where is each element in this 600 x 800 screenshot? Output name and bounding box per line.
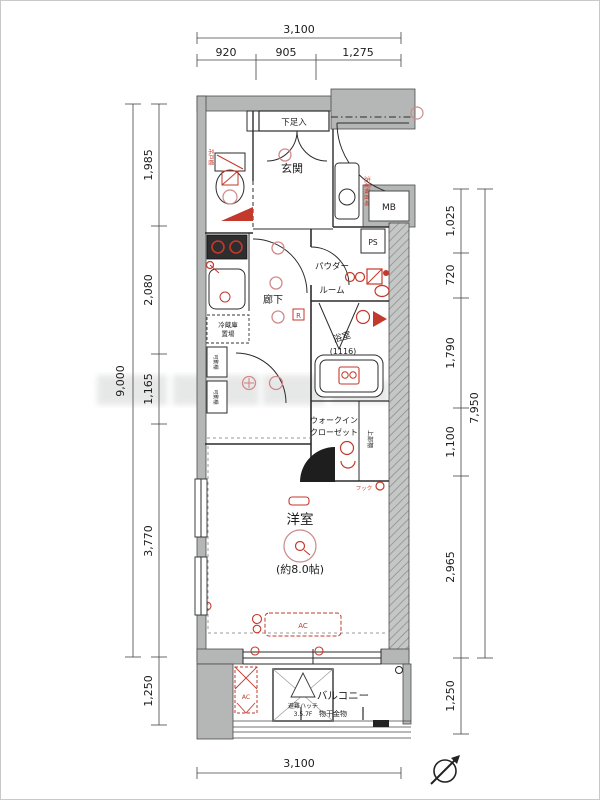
ceiling-light-icon [284, 530, 316, 562]
dim-top-seg-2: 905 [276, 46, 297, 59]
balcony-window [243, 647, 381, 664]
dim-right-seg-5: 2,965 [444, 551, 457, 583]
wall-bottom-right [381, 649, 409, 664]
relay-mark-label: R [296, 312, 301, 320]
shower-marker [373, 311, 387, 327]
washing-machine [335, 163, 359, 219]
dim-right-seg-6: 1,250 [444, 680, 457, 712]
entrance-label: 玄関 [281, 161, 303, 175]
wall-right-hatched [389, 223, 409, 661]
dimension-right: 1,025 720 1,790 1,100 2,965 1,250 7,950 [444, 189, 493, 734]
hallway-label: 廊下 [263, 293, 283, 306]
dim-bottom-total: 3,100 [283, 757, 315, 770]
dim-top-seg-3: 1,275 [342, 46, 374, 59]
upper-shelf-label: 上部棚 [366, 430, 374, 448]
shoe-door-arc-left [267, 131, 297, 161]
western-room-size-label: (約8.0帖) [276, 562, 324, 576]
fridge-space [207, 315, 249, 343]
shoe-door-arc-right [297, 131, 327, 161]
dimension-left: 9,000 1,985 2,080 1,165 3,770 1,250 [114, 104, 167, 725]
kitchen-sink [209, 269, 245, 309]
dim-right-seg-4: 1,100 [444, 426, 457, 458]
bathtub [315, 355, 383, 397]
wall-balcony-left [197, 664, 233, 739]
movable-shelf-label-1: 可動棚 [212, 354, 219, 369]
closet-label-2: クローゼット [310, 427, 358, 437]
stove [207, 235, 247, 259]
balcony-label: バルコニー [317, 690, 369, 702]
dim-right-seg-2: 720 [444, 265, 457, 286]
walls [197, 89, 415, 739]
fridge-label-2: 置場 [222, 329, 236, 338]
dim-top-total: 3,100 [283, 23, 315, 36]
dim-left-seg-1: 1,985 [142, 149, 155, 181]
hook-label: フック [356, 485, 373, 492]
toilet-room: 吊戸棚 [205, 111, 253, 233]
meter-box-label: MB [382, 203, 396, 213]
dim-left-seg-5: 1,250 [142, 675, 155, 707]
western-room-label: 洋室 [287, 511, 314, 528]
wall-bottom-left [197, 649, 243, 664]
hall-door-arc [253, 239, 307, 293]
dim-left-total: 9,000 [114, 365, 127, 397]
evacuation-hatch-label-1: 避難ハッチ [288, 702, 318, 710]
balcony: AC 避難ハッチ 3.5.7F バルコニー 物干金物 [233, 667, 411, 739]
powder-room-label-1: パウダー [315, 261, 349, 272]
movable-shelf-label-2: 可動棚 [212, 389, 219, 404]
balcony-drain-box [373, 720, 389, 727]
walk-in-closet: ウォークイン クローゼット 上部棚 フック [300, 401, 389, 492]
drying-fixture-label: 物干金物 [319, 709, 347, 718]
ac-outdoor-space [235, 667, 257, 713]
dim-left-seg-2: 2,080 [142, 274, 155, 306]
dimension-bottom: 3,100 [197, 757, 401, 779]
toilet-red-marker [221, 207, 253, 221]
dim-top-seg-1: 920 [216, 46, 237, 59]
ac-label: AC [298, 622, 308, 630]
detector-icon [289, 497, 309, 505]
toilet-bowl [216, 170, 244, 204]
shoe-cabinet-label: 下足入 [281, 118, 307, 128]
floor-plan-drawing: 3,100 920 905 1,275 9,000 1,985 2,080 1,… [1, 1, 599, 799]
dim-right-total: 7,950 [468, 392, 481, 424]
north-arrow-icon [431, 755, 460, 784]
floor-plan-canvas: 3,100 920 905 1,275 9,000 1,985 2,080 1,… [0, 0, 600, 800]
dim-right-seg-3: 1,790 [444, 337, 457, 369]
evacuation-hatch-label-2: 3.5.7F [294, 711, 313, 718]
fridge-label-1: 冷蔵庫 [218, 320, 238, 329]
ac-outdoor-label: AC [242, 694, 250, 701]
dim-left-seg-3: 1,165 [142, 373, 155, 405]
wall-top [197, 96, 345, 111]
dim-right-seg-1: 1,025 [444, 205, 457, 237]
wall-balcony-right [403, 664, 411, 724]
drain-icon [396, 667, 403, 674]
dimension-top: 3,100 920 905 1,275 [197, 23, 401, 80]
dim-left-seg-4: 3,770 [142, 525, 155, 557]
hook-icon [376, 482, 384, 490]
hanging-cabinet-label: 吊戸棚 [207, 149, 215, 166]
western-room: 洋室 (約8.0帖) AC [195, 438, 387, 636]
pipe-space-label: PS [368, 238, 378, 247]
room-door-leaf [300, 447, 335, 482]
closet-label-1: ウォークイン [310, 416, 358, 425]
washbasin-bowl [375, 286, 389, 297]
bathroom-label: 浴室 [332, 329, 353, 345]
powder-room-label-2: ルーム [319, 286, 344, 296]
